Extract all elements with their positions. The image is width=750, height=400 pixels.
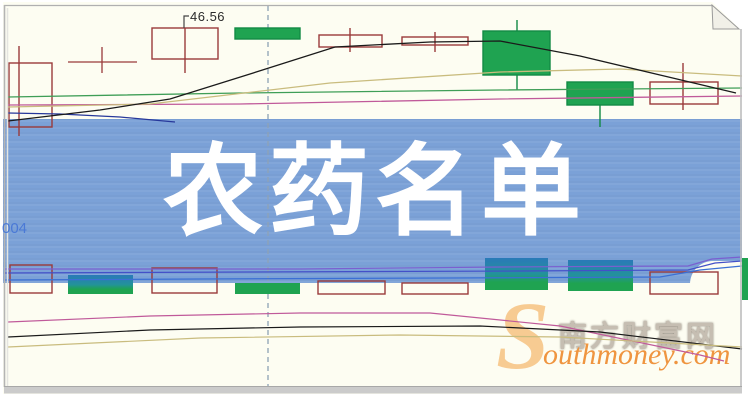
price-label: 46.56 [190,9,225,24]
doji-cross [68,47,137,73]
candles [9,20,718,136]
stock-code-label: 004 [2,220,27,237]
page-root: { "banner": { "title": "农药名单", "bg_color… [0,0,750,400]
page-fold-corner [712,5,739,29]
banner-title: 农药名单 [0,142,750,242]
price-pointer-line [184,16,189,28]
ma-lines-bottom [8,313,742,361]
